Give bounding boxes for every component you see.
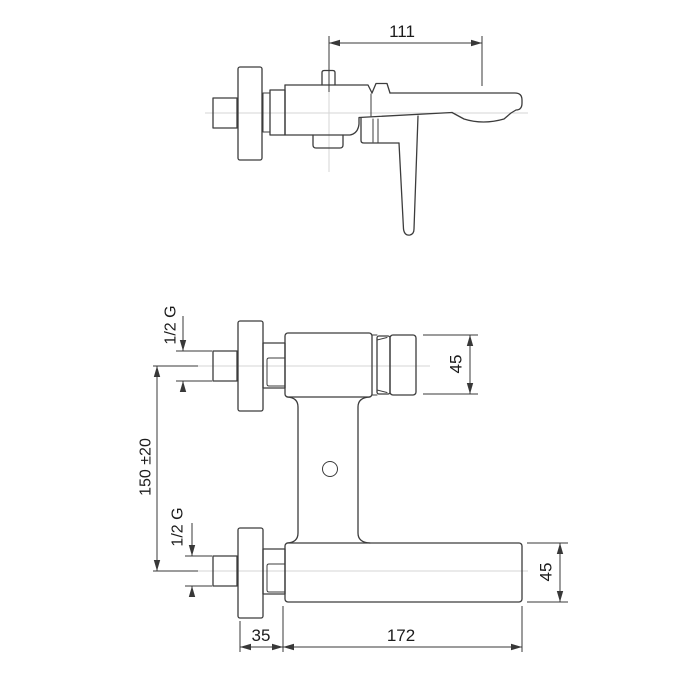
side-view — [213, 67, 522, 235]
dim-label-bottom-inlet-thread: 1/2 G — [170, 507, 187, 546]
front-valve-body — [285, 333, 372, 397]
side-handle-hub-lines — [373, 119, 378, 143]
front-spout-body — [285, 543, 522, 602]
dim-label-spout-reach: 111 — [389, 22, 415, 41]
dim-label-wall-clearance: 35 — [252, 626, 271, 645]
front-collar-connectors — [372, 335, 377, 395]
front-end-cap — [390, 335, 416, 395]
front-bottom-wall-flange — [238, 528, 263, 618]
front-top-nut-inner — [267, 358, 285, 386]
front-screw-hole — [323, 462, 338, 477]
dim-label-inlet-spacing: 150 ±20 — [138, 438, 155, 496]
side-body-bottom-edge — [285, 85, 359, 135]
dim-label-valve-body-height: 45 — [447, 355, 466, 374]
dim-label-spout-body-height: 45 — [537, 563, 556, 582]
dim-label-body-length: 172 — [387, 626, 415, 645]
side-spout — [390, 93, 522, 122]
front-column-left-edge — [287, 397, 298, 543]
side-underbody-tab — [313, 135, 343, 148]
side-handle-lever — [399, 116, 418, 235]
drawing-svg: 111 1/2 G 150 ±20 1/2 G 45 45 35 172 — [0, 0, 700, 700]
technical-drawing-page: 111 1/2 G 150 ±20 1/2 G 45 45 35 172 — [0, 0, 700, 700]
front-column-right-edge — [358, 397, 370, 543]
centerlines — [198, 62, 528, 571]
side-cartridge-collar — [372, 84, 390, 94]
front-cartridge-collar — [377, 336, 390, 394]
front-collar-chamfers — [377, 338, 387, 393]
dim-label-top-inlet-thread: 1/2 G — [163, 305, 180, 344]
front-bottom-nut-inner — [267, 564, 285, 592]
side-handle-hub — [361, 118, 399, 143]
